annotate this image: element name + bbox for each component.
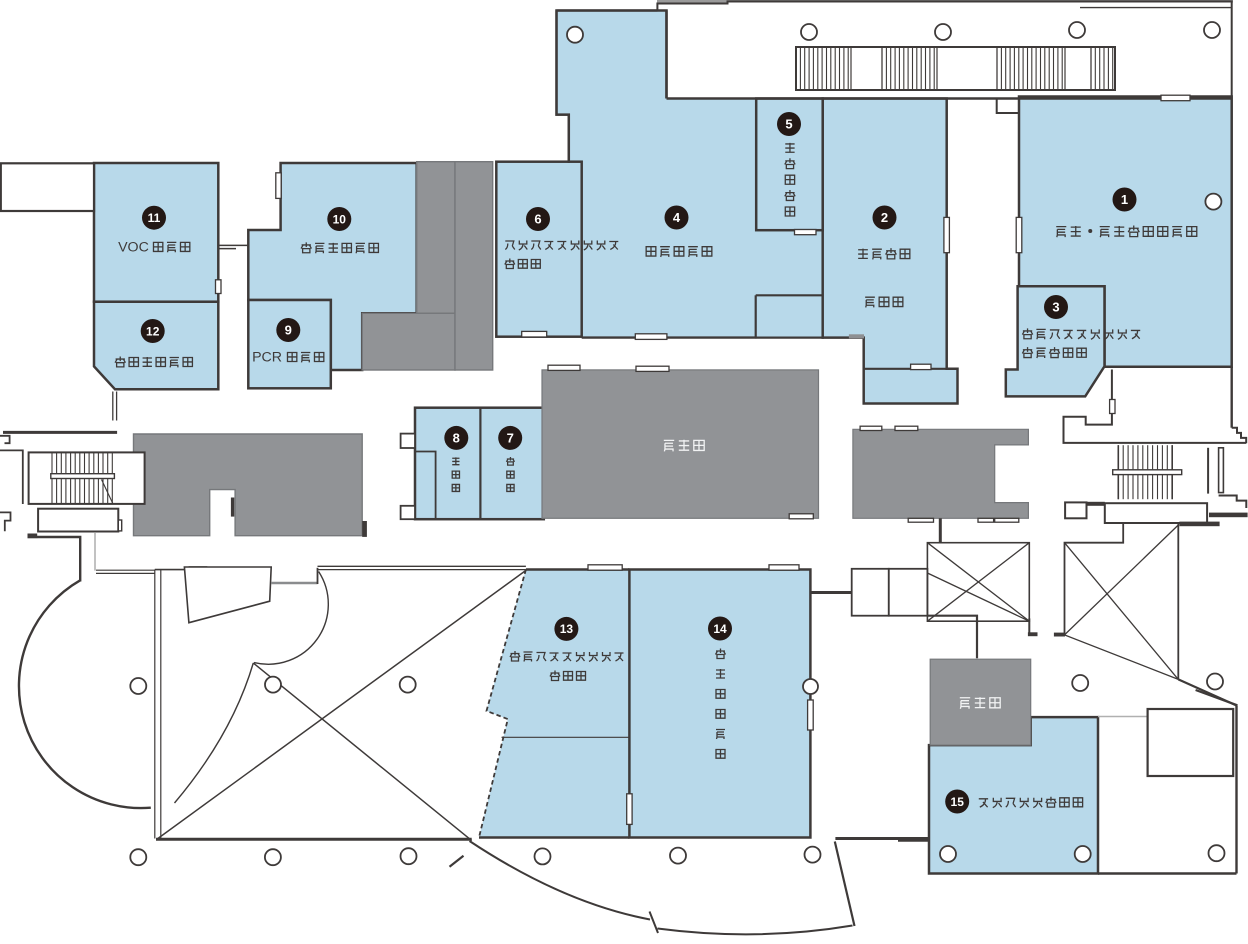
svg-text:VOC: VOC xyxy=(118,239,149,255)
svg-text:14: 14 xyxy=(713,622,727,636)
svg-text:6: 6 xyxy=(534,212,541,227)
svg-text:12: 12 xyxy=(146,324,160,338)
svg-text:5: 5 xyxy=(785,117,792,132)
svg-text:1: 1 xyxy=(1121,192,1128,207)
svg-text:8: 8 xyxy=(453,431,460,446)
svg-text:4: 4 xyxy=(673,210,681,225)
svg-text:11: 11 xyxy=(148,211,161,225)
svg-text:9: 9 xyxy=(285,323,292,338)
svg-text:7: 7 xyxy=(507,431,514,446)
svg-text:2: 2 xyxy=(881,210,888,225)
svg-text:13: 13 xyxy=(560,622,574,636)
svg-text:15: 15 xyxy=(951,795,965,809)
svg-text:PCR: PCR xyxy=(252,350,282,366)
svg-text:10: 10 xyxy=(333,212,347,226)
svg-text:3: 3 xyxy=(1052,300,1059,315)
